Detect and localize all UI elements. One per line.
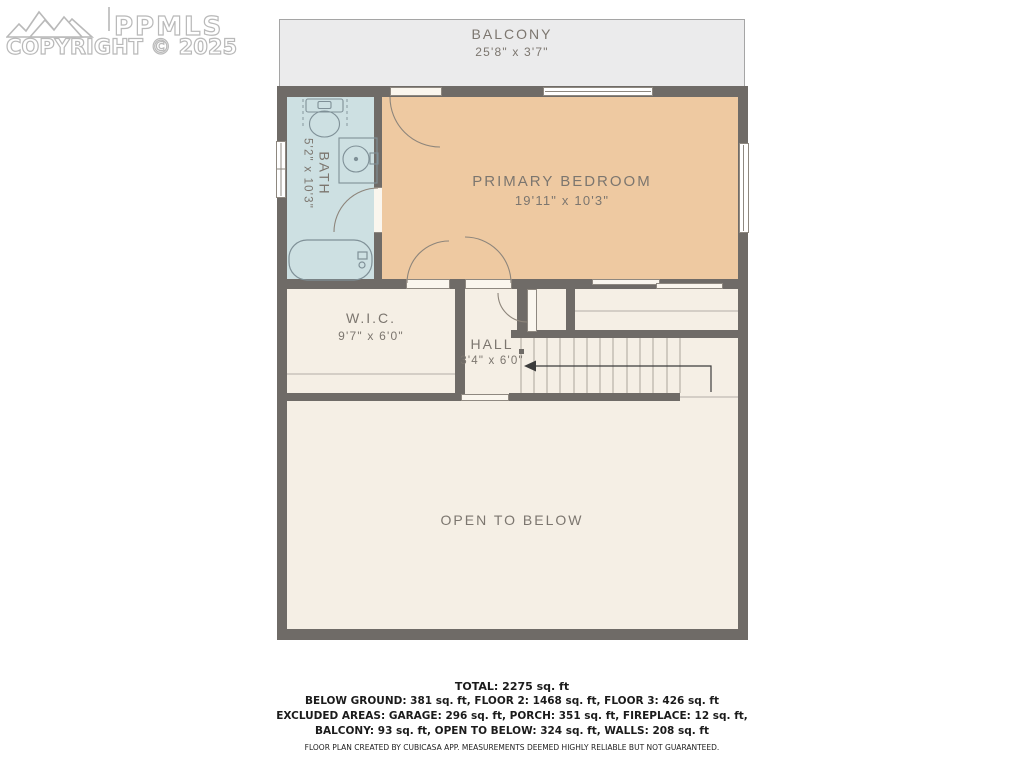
balcony-door-arc [390, 97, 440, 147]
newel-post-dot [519, 349, 524, 354]
toilet-icon [303, 99, 347, 137]
area-summary: TOTAL: 2275 sq. ft BELOW GROUND: 381 sq.… [0, 679, 1024, 752]
stair-arrow-icon [519, 349, 711, 392]
sink-icon [339, 138, 378, 183]
disclaimer-text: FLOOR PLAN CREATED BY CUBICASA APP. MEAS… [0, 743, 1024, 752]
excluded-areas-text-2: BALCONY: 93 sq. ft, OPEN TO BELOW: 324 s… [0, 724, 1024, 739]
closet-door-arc [498, 293, 527, 322]
bath-door-arc [334, 188, 378, 232]
plan-linework [0, 0, 1024, 767]
floor-plan-page: PPMLS COPYRIGHT © 2025 [0, 0, 1024, 767]
excluded-areas-text-1: EXCLUDED AREAS: GARAGE: 296 sq. ft, PORC… [0, 709, 1024, 724]
hall-door-arc [465, 237, 511, 283]
floors-area-text: BELOW GROUND: 381 sq. ft, FLOOR 2: 1468 … [0, 694, 1024, 709]
bathtub-icon [289, 240, 372, 280]
wic-door-arc [407, 241, 449, 283]
total-area-text: TOTAL: 2275 sq. ft [0, 679, 1024, 694]
